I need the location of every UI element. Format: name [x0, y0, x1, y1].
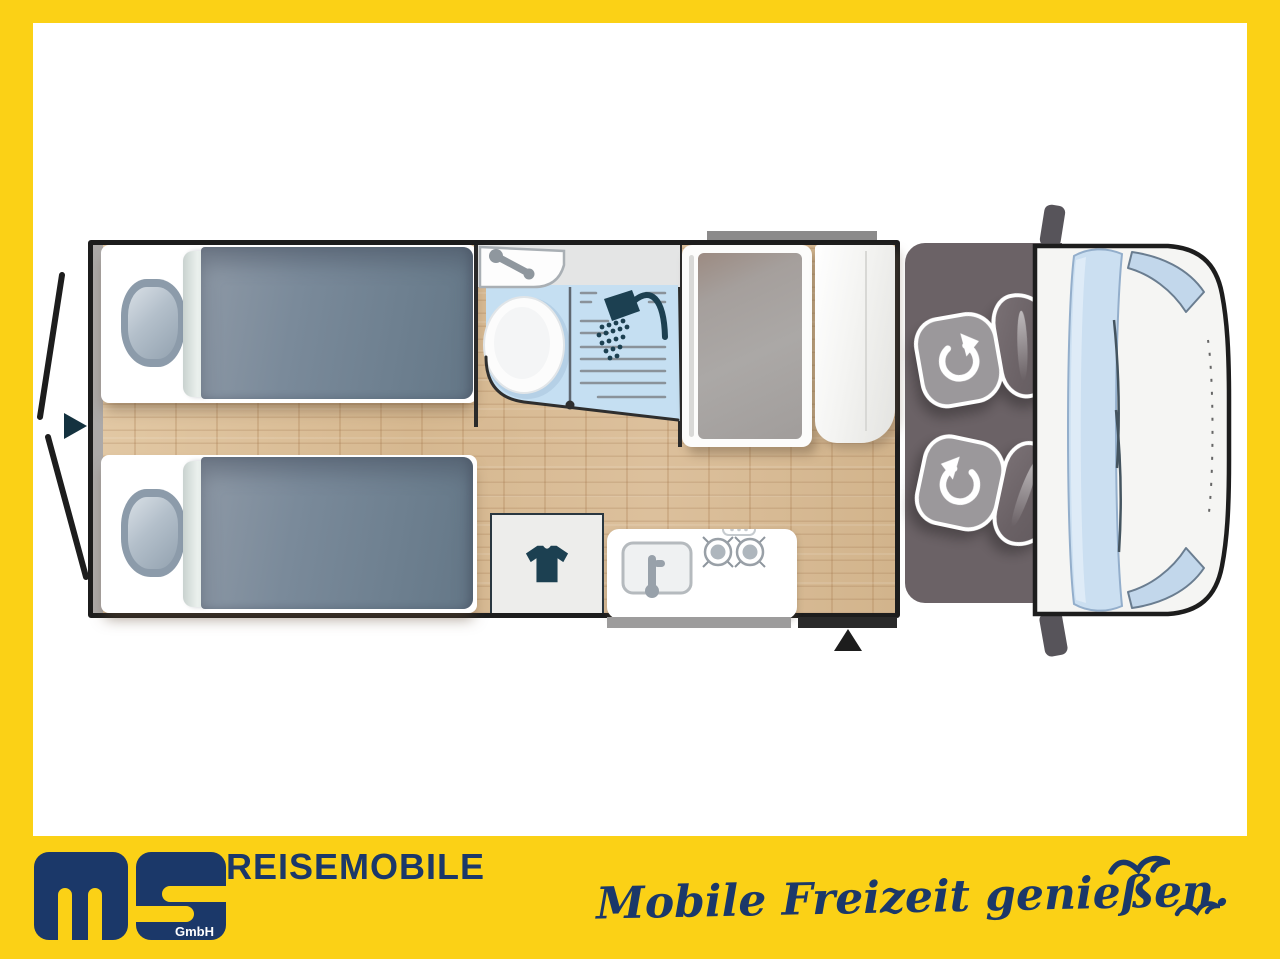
kitchen-plinth — [607, 617, 791, 628]
tall-cabinet — [815, 245, 895, 443]
pillow — [121, 489, 185, 577]
rotate-arrow-icon — [924, 325, 994, 395]
kitchen-counter — [607, 529, 797, 619]
duvet — [201, 457, 473, 609]
wordmark: REISEMOBILE — [226, 846, 485, 888]
pillow — [121, 279, 185, 367]
single-bed-bottom — [101, 455, 477, 613]
ms-logo: GmbH — [34, 852, 226, 942]
side-mirror-bottom — [1038, 610, 1068, 657]
seagull-icon-large — [1108, 852, 1170, 884]
wardrobe — [682, 245, 812, 447]
wardrobe-handle — [689, 255, 694, 437]
rotate-arrow-icon — [925, 448, 996, 519]
kitchen-graphic — [607, 529, 797, 619]
frame-top — [0, 0, 1280, 23]
frame-left — [0, 0, 33, 959]
backrest-highlight — [1016, 311, 1028, 381]
bathroom — [478, 245, 680, 427]
living-area — [88, 240, 900, 618]
vehicle-front — [1030, 200, 1240, 660]
cabinet-door-seam — [865, 251, 867, 431]
side-mirror-top — [1039, 204, 1066, 249]
frame-right — [1247, 0, 1280, 959]
right-triangle-marker — [64, 413, 87, 439]
up-triangle-marker — [834, 629, 862, 651]
motorhome-floorplan-advert: GmbH REISEMOBILE Mobile Freizeit genieße… — [0, 0, 1280, 959]
entrance-step — [798, 617, 897, 628]
company-suffix: GmbH — [175, 924, 214, 939]
clothes-closet — [490, 513, 604, 613]
wardrobe-interior — [698, 253, 802, 439]
hob-controls — [723, 529, 755, 535]
kitchen-sink — [623, 543, 691, 593]
pillow-highlight — [128, 497, 178, 569]
single-bed-top — [101, 245, 477, 403]
toilet-seat — [494, 307, 550, 379]
hob-burner-2 — [735, 537, 765, 567]
rear-door-swing-marker — [30, 265, 100, 595]
vehicle-body — [1035, 246, 1229, 614]
bathroom-graphic — [478, 245, 680, 427]
hob-burner-1 — [703, 537, 733, 567]
pillow-highlight — [128, 287, 178, 359]
t-shirt-icon — [524, 543, 570, 585]
seagull-icon-small — [1174, 898, 1220, 924]
duvet — [201, 247, 473, 399]
